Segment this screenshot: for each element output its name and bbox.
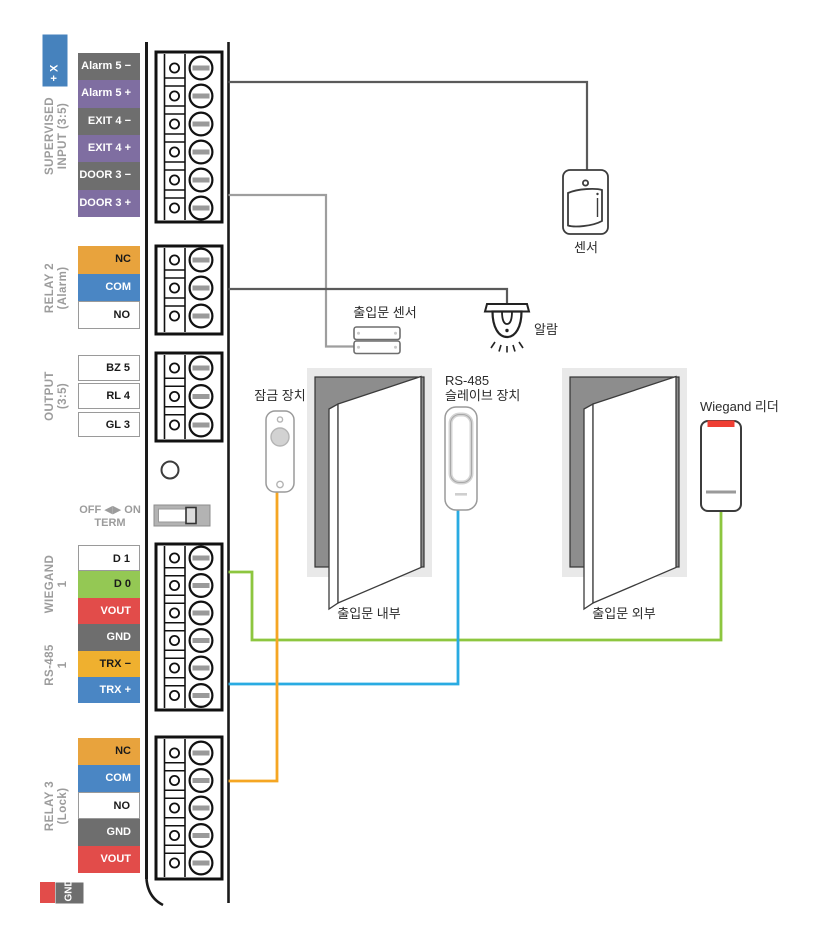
motion-sensor-icon: [563, 170, 608, 234]
sensor-label: 센서: [574, 240, 598, 255]
door-inside-graphic: [307, 368, 432, 609]
terminal-block-4: [156, 737, 222, 879]
wiegand-reader-icon: [701, 421, 741, 512]
diagram-graphics: [0, 0, 817, 944]
alarm-wire: [229, 289, 508, 303]
door-outside-label: 출입문 외부: [592, 606, 655, 621]
terminal-block-3: [156, 544, 222, 710]
sensor-wire: [229, 82, 588, 170]
rs485-slave-device-icon: [445, 407, 477, 510]
door-sensor-wire: [229, 195, 355, 347]
termination-switch: [154, 505, 210, 526]
lock-device-icon: [266, 411, 294, 492]
door-contact-sensor-icon: [354, 327, 400, 354]
door-sensor-label: 출입문 센서: [353, 305, 416, 320]
wiring-diagram: + X GND SUPERVISED INPUT (3:5) RELAY 2 (…: [0, 0, 817, 944]
rs485-device-label: RS-485 슬레이브 장치: [445, 373, 520, 403]
mounting-hole: [162, 462, 179, 479]
terminal-block-0: [156, 52, 222, 222]
door-outside-graphic: [562, 368, 687, 609]
wiegand-reader-label: Wiegand 리더: [700, 399, 779, 414]
terminal-block-2: [156, 353, 222, 441]
terminal-block-1: [156, 246, 222, 334]
lock-label: 잠금 장치: [254, 388, 305, 403]
alarm-siren-icon: [485, 304, 529, 353]
alarm-label: 알람: [534, 322, 558, 337]
door-inside-label: 출입문 내부: [337, 606, 400, 621]
